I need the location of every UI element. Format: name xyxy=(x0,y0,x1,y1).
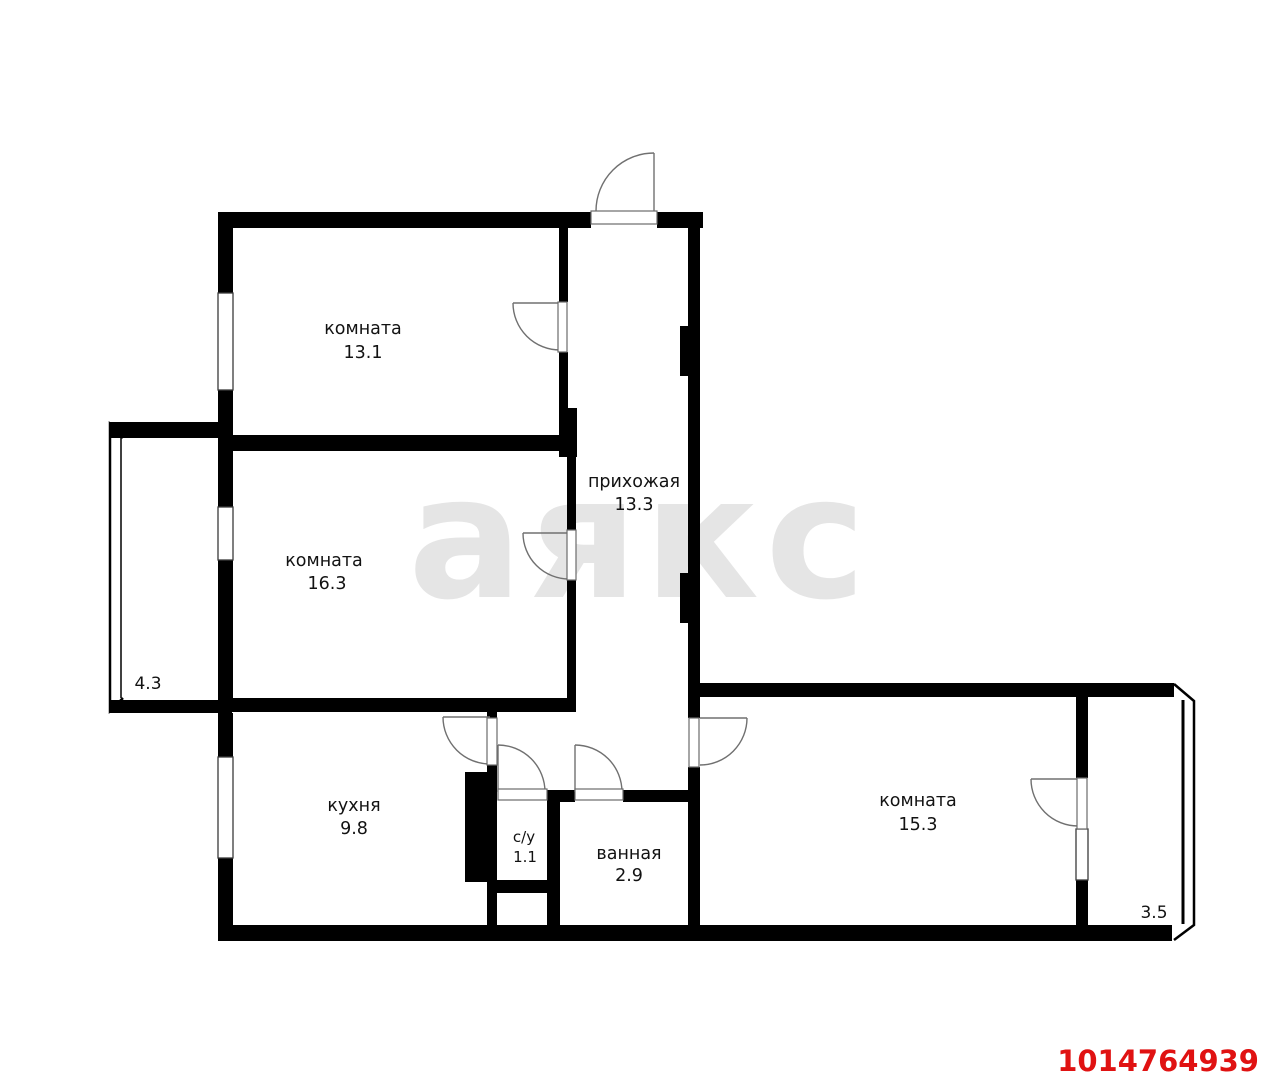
label-room3-area: 15.3 xyxy=(899,815,938,835)
door-balcony-right xyxy=(1031,778,1087,829)
window-room-15-3-balcony xyxy=(1076,829,1088,880)
label-wc-name: с/у xyxy=(513,828,535,846)
door-room-13-1 xyxy=(513,302,567,352)
entrance-door xyxy=(591,153,657,224)
window-room-16-3-balcony xyxy=(218,507,233,560)
agency-watermark: аякс xyxy=(408,440,872,638)
label-hallway-name: прихожая xyxy=(588,472,680,492)
label-room2-name: комната xyxy=(285,551,363,571)
window-kitchen xyxy=(218,757,233,858)
label-room1-name: комната xyxy=(324,319,402,339)
label-kitchen-area: 9.8 xyxy=(340,819,368,839)
floorplan-canvas: аякс xyxy=(0,0,1280,1079)
door-wc xyxy=(498,745,547,800)
listing-id: 1014764939 xyxy=(1057,1044,1259,1078)
label-balcony-left-area: 4.3 xyxy=(134,674,161,694)
label-room1-area: 13.1 xyxy=(344,343,383,363)
label-wc-area: 1.1 xyxy=(513,848,537,866)
window-room-13-1 xyxy=(218,293,233,390)
label-bathroom-name: ванная xyxy=(596,844,661,864)
door-bathroom xyxy=(575,745,623,800)
door-kitchen xyxy=(443,717,497,765)
label-kitchen-name: кухня xyxy=(327,796,380,816)
door-room-15-3 xyxy=(689,718,747,767)
label-hallway-area: 13.3 xyxy=(615,495,654,515)
label-room2-area: 16.3 xyxy=(308,574,347,594)
label-balcony-right-area: 3.5 xyxy=(1140,903,1167,923)
label-bathroom-area: 2.9 xyxy=(615,866,643,886)
floorplan-drawing: аякс xyxy=(0,0,1280,1079)
label-room3-name: комната xyxy=(879,791,957,811)
